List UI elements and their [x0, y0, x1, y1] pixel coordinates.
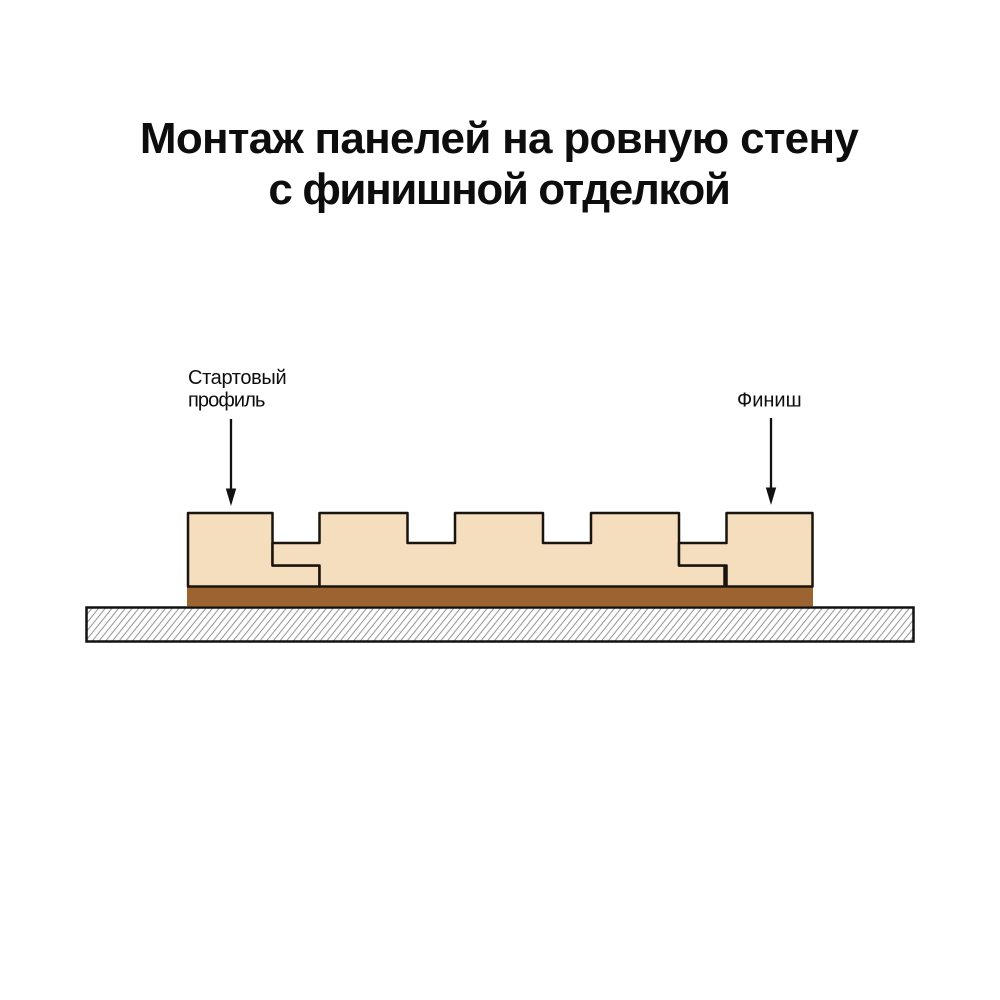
svg-text:профиль: профиль [188, 390, 265, 412]
svg-text:с финишной отделкой: с финишной отделкой [268, 165, 729, 214]
svg-text:Монтаж панелей на ровную стену: Монтаж панелей на ровную стену [140, 114, 859, 163]
svg-text:Финиш: Финиш [737, 390, 802, 412]
svg-text:Стартовый: Стартовый [188, 367, 286, 389]
